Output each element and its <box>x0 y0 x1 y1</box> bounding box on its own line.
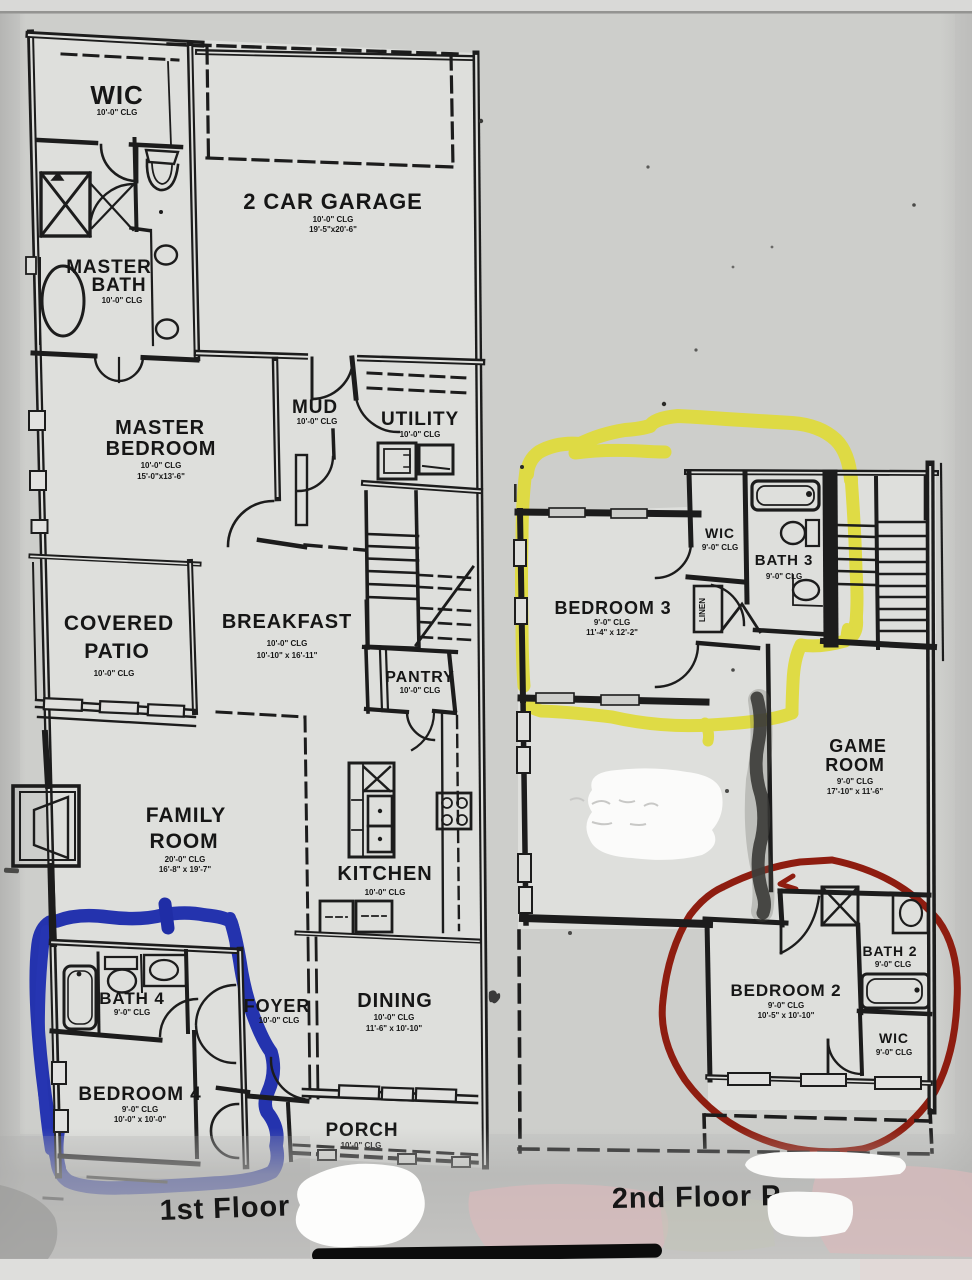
svg-text:FAMILY: FAMILY <box>146 804 226 827</box>
svg-text:10'-0" CLG: 10'-0" CLG <box>259 1016 300 1025</box>
svg-text:WIC: WIC <box>705 525 735 541</box>
svg-text:9'-0" CLG: 9'-0" CLG <box>766 572 802 581</box>
svg-text:15'-0"x13'-6": 15'-0"x13'-6" <box>137 472 185 481</box>
svg-text:DINING: DINING <box>357 990 432 1012</box>
svg-text:9'-0" CLG: 9'-0" CLG <box>122 1105 158 1114</box>
svg-text:ROOM: ROOM <box>825 755 885 775</box>
svg-text:MUD: MUD <box>292 397 338 418</box>
svg-text:BATH 2: BATH 2 <box>863 943 918 959</box>
svg-text:2nd Floor P: 2nd Floor P <box>612 1180 782 1215</box>
svg-text:COVERED: COVERED <box>64 612 174 635</box>
svg-text:ROOM: ROOM <box>150 830 219 853</box>
svg-text:10'-0" CLG: 10'-0" CLG <box>365 888 406 897</box>
svg-text:UTILITY: UTILITY <box>381 409 459 430</box>
svg-text:20'-0" CLG: 20'-0" CLG <box>165 855 206 864</box>
svg-text:9'-0" CLG: 9'-0" CLG <box>768 1001 804 1010</box>
svg-text:BATH 4: BATH 4 <box>99 989 165 1008</box>
svg-text:11'-4" x 12'-2": 11'-4" x 12'-2" <box>586 628 638 637</box>
svg-text:1st Floor P: 1st Floor P <box>159 1189 320 1227</box>
svg-text:FOYER: FOYER <box>244 996 311 1016</box>
svg-text:10'-0" x 10'-0": 10'-0" x 10'-0" <box>114 1115 167 1124</box>
svg-text:9'-0" CLG: 9'-0" CLG <box>875 960 911 969</box>
svg-text:19'-5"x20'-6": 19'-5"x20'-6" <box>309 225 357 234</box>
svg-text:PATIO: PATIO <box>84 640 150 663</box>
svg-text:10'-0" CLG: 10'-0" CLG <box>94 669 135 678</box>
svg-text:BREAKFAST: BREAKFAST <box>222 611 352 633</box>
svg-text:10'-0" CLG: 10'-0" CLG <box>374 1013 415 1022</box>
svg-text:9'-0" CLG: 9'-0" CLG <box>702 543 738 552</box>
svg-text:KITCHEN: KITCHEN <box>337 863 432 885</box>
svg-text:10'-0" CLG: 10'-0" CLG <box>141 461 182 470</box>
svg-text:17'-10" x 11'-6": 17'-10" x 11'-6" <box>827 787 884 796</box>
svg-text:BEDROOM: BEDROOM <box>106 438 217 460</box>
svg-text:10'-0" CLG: 10'-0" CLG <box>267 639 308 648</box>
svg-text:9'-0" CLG: 9'-0" CLG <box>594 618 630 627</box>
svg-text:10'-5" x 10'-10": 10'-5" x 10'-10" <box>758 1011 815 1020</box>
svg-text:11'-6" x 10'-10": 11'-6" x 10'-10" <box>366 1024 423 1033</box>
svg-text:10'-0" CLG: 10'-0" CLG <box>400 686 441 695</box>
svg-text:10'-0" CLG: 10'-0" CLG <box>97 108 138 117</box>
svg-text:GAME: GAME <box>829 736 887 756</box>
svg-text:10'-10" x 16'-11": 10'-10" x 16'-11" <box>257 651 318 660</box>
svg-text:WIC: WIC <box>879 1030 909 1046</box>
svg-text:BEDROOM 4: BEDROOM 4 <box>78 1084 201 1105</box>
svg-text:BATH 3: BATH 3 <box>755 552 813 569</box>
svg-text:2 CAR GARAGE: 2 CAR GARAGE <box>243 189 423 214</box>
svg-text:9'-0" CLG: 9'-0" CLG <box>114 1008 150 1017</box>
svg-text:BEDROOM 2: BEDROOM 2 <box>730 981 841 1000</box>
svg-text:BEDROOM 3: BEDROOM 3 <box>554 598 671 618</box>
svg-text:MASTER: MASTER <box>115 417 205 439</box>
svg-text:9'-0" CLG: 9'-0" CLG <box>876 1048 912 1057</box>
svg-text:10'-0" CLG: 10'-0" CLG <box>102 296 143 305</box>
svg-text:PANTRY: PANTRY <box>385 669 454 686</box>
svg-text:LINEN: LINEN <box>698 598 707 622</box>
svg-text:10'-0" CLG: 10'-0" CLG <box>313 215 354 224</box>
svg-text:WIC: WIC <box>90 80 143 110</box>
svg-text:BATH: BATH <box>92 275 147 296</box>
svg-text:9'-0" CLG: 9'-0" CLG <box>837 777 873 786</box>
svg-text:16'-8" x 19'-7": 16'-8" x 19'-7" <box>159 865 212 874</box>
svg-text:10'-0" CLG: 10'-0" CLG <box>297 417 338 426</box>
svg-text:10'-0" CLG: 10'-0" CLG <box>400 430 441 439</box>
